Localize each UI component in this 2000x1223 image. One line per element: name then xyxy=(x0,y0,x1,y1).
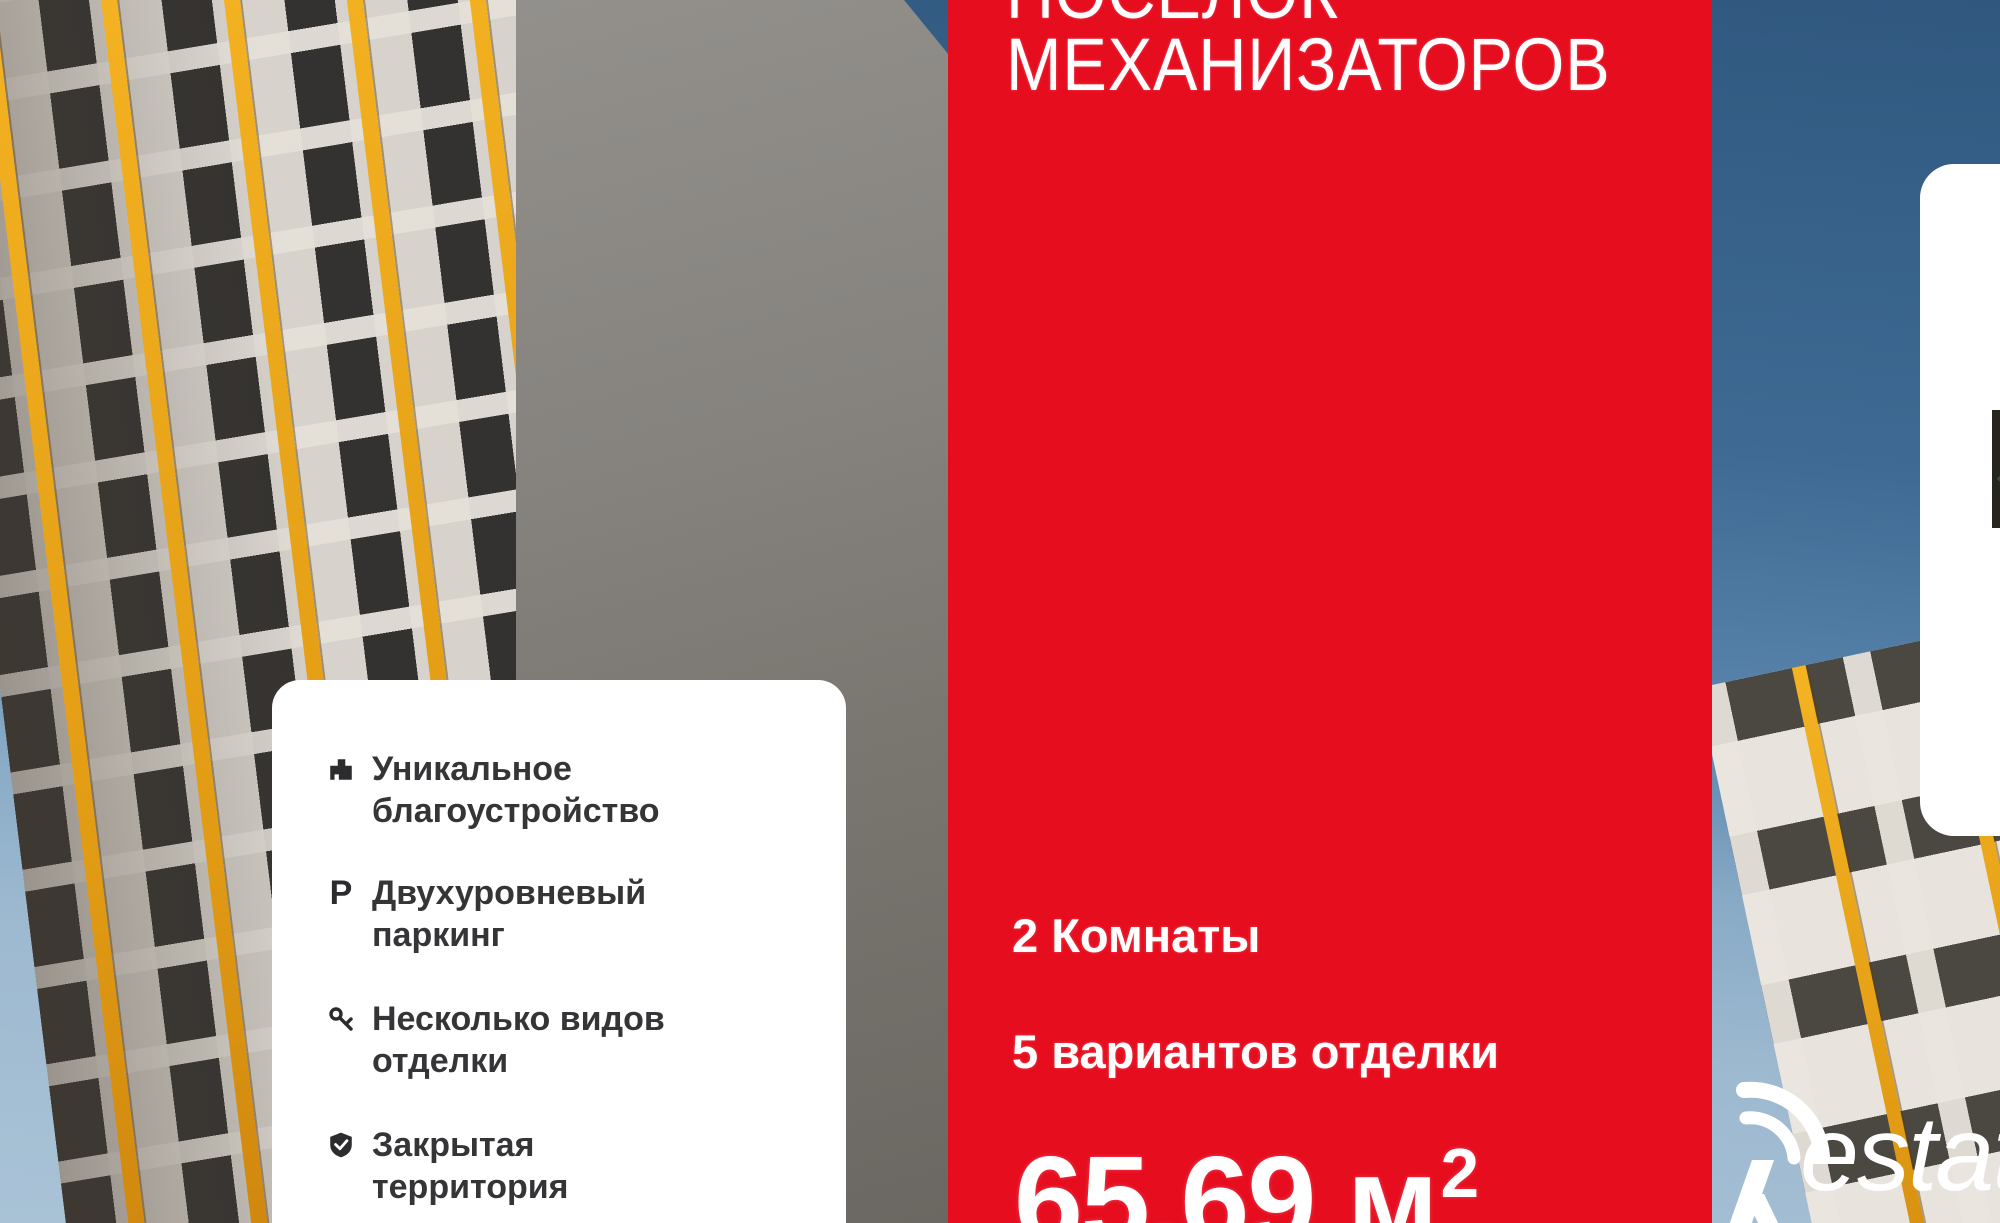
feature-item: Р Двухуровневый паркинг xyxy=(322,872,724,956)
floorplan-drawing xyxy=(1990,404,2000,619)
finish-options: 5 вариантов отделки xyxy=(1012,1024,1499,1079)
promo-panel: ПОСЕЛОК МЕХАНИЗАТОРОВ xyxy=(948,0,1712,1223)
real-estate-promo-banner: ПОСЕЛОК МЕХАНИЗАТОРОВ xyxy=(0,0,2000,1223)
floorplan-card: 3Е Ю З В С xyxy=(1920,164,2000,836)
restate-logo-text: estate xyxy=(1800,1094,2000,1215)
feature-label: Двухуровневый паркинг xyxy=(372,872,724,956)
landscaping-icon xyxy=(322,750,360,788)
key-icon xyxy=(322,1000,360,1038)
shield-check-icon xyxy=(322,1126,360,1164)
area-superscript: 2 xyxy=(1441,1134,1478,1212)
apartment-area: 65.69 м2 xyxy=(1014,1130,1477,1223)
rooms-count: 2 Комнаты xyxy=(1012,908,1260,963)
feature-item: Закрытая территория xyxy=(322,1124,724,1208)
feature-label: Несколько видов отделки xyxy=(372,998,724,1082)
feature-item: Уникальное благоустройство xyxy=(322,748,724,832)
parking-icon: Р xyxy=(322,874,360,912)
features-card: Уникальное благоустройство Р Двухуровнев… xyxy=(272,680,846,1223)
area-unit: м xyxy=(1347,1132,1437,1223)
feature-item: Несколько видов отделки xyxy=(322,998,724,1082)
complex-title-line2: МЕХАНИЗАТОРОВ xyxy=(1006,22,1611,107)
restate-watermark: estate xyxy=(1688,1072,2000,1223)
feature-label: Уникальное благоустройство xyxy=(372,748,724,832)
feature-label: Закрытая территория xyxy=(372,1124,724,1208)
area-value: 65.69 xyxy=(1014,1132,1314,1223)
facade-accent-stripe xyxy=(0,0,167,1223)
